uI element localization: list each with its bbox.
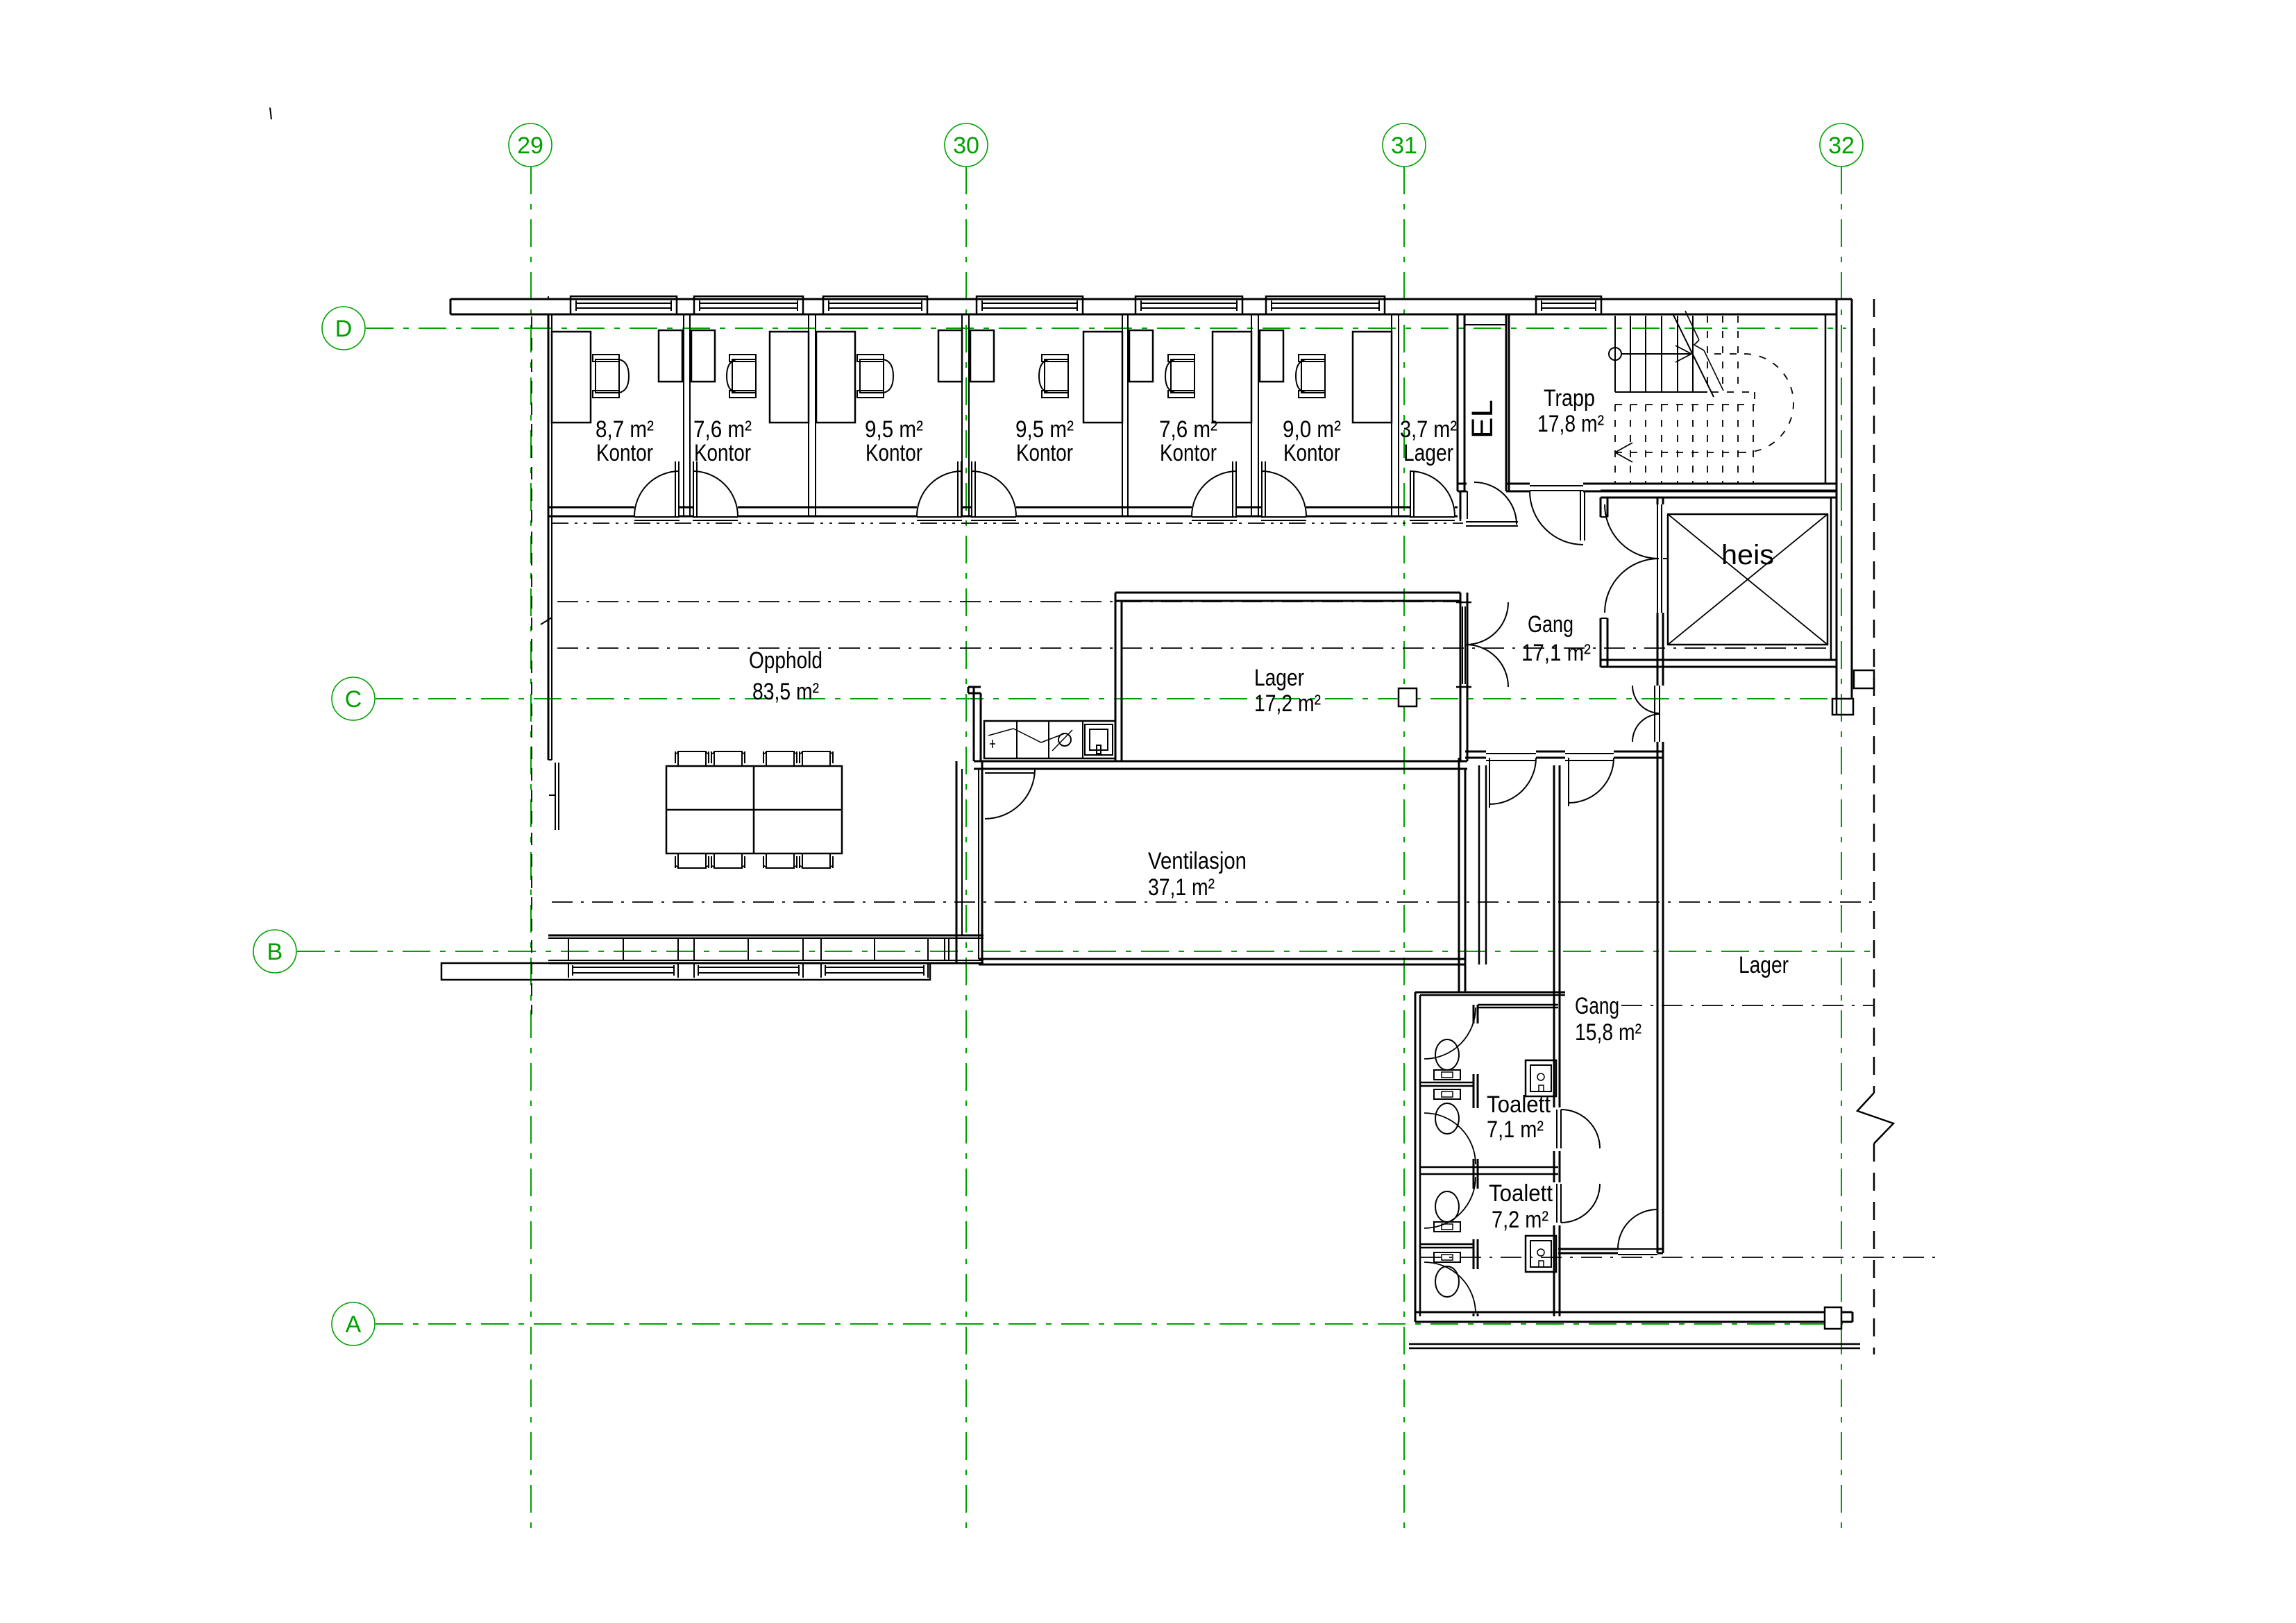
svg-text:9,5 m²: 9,5 m²: [865, 416, 923, 443]
svg-text:17,1 m²: 17,1 m²: [1521, 640, 1591, 666]
svg-text:Toalett: Toalett: [1489, 1180, 1553, 1207]
svg-text:Kontor: Kontor: [1016, 440, 1073, 466]
svg-text:9,5 m²: 9,5 m²: [1015, 416, 1074, 443]
svg-text:7,2 m²: 7,2 m²: [1492, 1207, 1548, 1233]
svg-text:Gang: Gang: [1528, 611, 1573, 638]
svg-text:C: C: [345, 686, 362, 713]
svg-text:Gang: Gang: [1575, 993, 1619, 1019]
svg-text:heis: heis: [1721, 540, 1774, 570]
svg-text:A: A: [346, 1311, 362, 1338]
svg-text:7,6 m²: 7,6 m²: [1159, 416, 1217, 443]
svg-text:8,7 m²: 8,7 m²: [596, 416, 654, 443]
svg-text:37,1 m²: 37,1 m²: [1148, 874, 1215, 901]
svg-text:D: D: [335, 316, 353, 342]
svg-text:30: 30: [953, 133, 979, 159]
svg-text:Kontor: Kontor: [694, 440, 751, 466]
svg-text:Lager: Lager: [1254, 665, 1304, 691]
svg-text:15,8 m²: 15,8 m²: [1575, 1019, 1641, 1046]
svg-text:Kontor: Kontor: [866, 440, 922, 466]
svg-text:Kontor: Kontor: [596, 440, 653, 466]
svg-text:7,6 m²: 7,6 m²: [693, 416, 752, 443]
svg-text:Kontor: Kontor: [1160, 440, 1217, 466]
svg-text:7,1 m²: 7,1 m²: [1487, 1116, 1544, 1143]
svg-text:3,7 m²: 3,7 m²: [1400, 416, 1457, 443]
svg-text:Lager: Lager: [1403, 440, 1453, 466]
svg-text:29: 29: [517, 133, 543, 159]
svg-text:Trapp: Trapp: [1544, 385, 1595, 411]
svg-text:EL: EL: [1466, 400, 1499, 439]
svg-text:Toalett: Toalett: [1487, 1091, 1551, 1118]
svg-text:Opphold: Opphold: [749, 647, 822, 674]
svg-text:17,8 m²: 17,8 m²: [1537, 411, 1604, 437]
svg-text:83,5 m²: 83,5 m²: [752, 679, 819, 705]
svg-text:17,2 m²: 17,2 m²: [1254, 690, 1321, 717]
svg-text:Lager: Lager: [1739, 952, 1789, 978]
svg-text:32: 32: [1828, 133, 1855, 159]
svg-text:B: B: [267, 939, 283, 965]
svg-text:9,0 m²: 9,0 m²: [1283, 416, 1341, 443]
svg-text:31: 31: [1391, 133, 1417, 159]
svg-text:Ventilasjon: Ventilasjon: [1148, 848, 1247, 874]
svg-text:Kontor: Kontor: [1283, 440, 1340, 466]
